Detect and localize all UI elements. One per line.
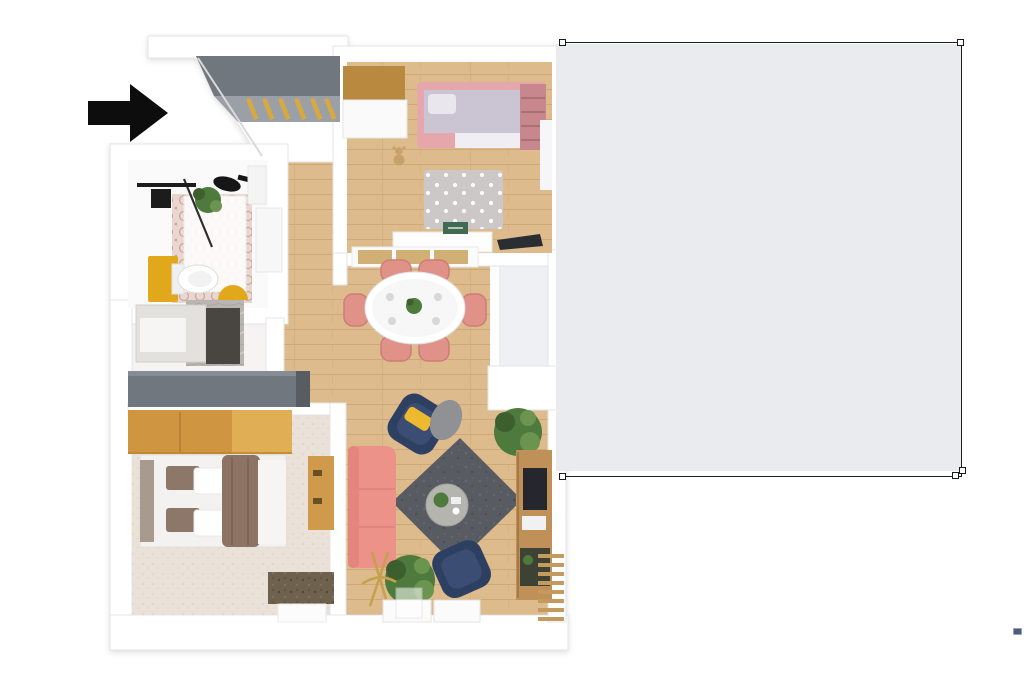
media-console [516, 450, 552, 600]
brown-duvet [222, 455, 260, 547]
entry-wardrobe-top [196, 56, 340, 96]
selection-rect-border[interactable] [562, 42, 962, 477]
laundry-right-wall [266, 318, 284, 374]
floor-plan [110, 36, 568, 650]
headboard [140, 460, 154, 542]
selection-handle-bottom-right[interactable] [952, 472, 959, 479]
kids-corner-stub [333, 253, 347, 285]
hall-cabinet-top [128, 371, 306, 376]
kids-window-curtain [540, 120, 552, 190]
hall-cabinet-cap [296, 371, 310, 407]
left-outer-wall [110, 300, 132, 630]
plant-top-right [494, 408, 542, 456]
bed-foot [258, 460, 286, 544]
coffee-table-book [451, 497, 461, 504]
white-pillow-2 [194, 510, 224, 536]
white-door-mat [278, 604, 326, 622]
selection-handle-bottom-right-2[interactable] [959, 467, 966, 474]
coffee-table-cup [453, 508, 460, 515]
laundry-niche [136, 300, 244, 366]
desk-item-2 [313, 498, 322, 504]
dining-balcony-wall [488, 366, 566, 410]
glass-vase [396, 588, 422, 618]
shower-head [151, 189, 171, 208]
pink-sofa [348, 446, 396, 568]
coffee-table [426, 484, 468, 526]
kids-bed-pillow [428, 94, 456, 114]
hall-cabinet-body [128, 371, 306, 407]
dark-panel [206, 308, 240, 364]
coffee-table-plant [434, 493, 449, 508]
bathroom-counter [248, 166, 266, 204]
bedside-desk [308, 456, 334, 530]
arrow-right-icon [88, 84, 168, 142]
kids-bed-foot [455, 133, 528, 148]
dark-speckled-rug [268, 572, 334, 604]
screenshot-canvas [0, 0, 1024, 696]
washing-machine-door [140, 318, 186, 352]
white-pillow-1 [194, 468, 224, 494]
bathroom-door [256, 208, 282, 272]
centerpiece-leaf [407, 299, 414, 306]
selection-handle-top-left[interactable] [559, 39, 566, 46]
dash-marker [1013, 628, 1022, 635]
tv [523, 468, 547, 510]
toilet-seat [188, 271, 212, 287]
kids-wardrobe-white [343, 100, 407, 138]
double-bed [140, 455, 286, 547]
selection-handle-bottom-left[interactable] [559, 473, 566, 480]
bedroom-wardrobe-right [232, 410, 292, 454]
kids-wardrobe-wood [343, 66, 405, 100]
bottom-wall [110, 615, 568, 650]
hall-cabinet [128, 371, 310, 407]
polka-dot-rug [424, 170, 503, 229]
white-console-2 [434, 600, 480, 622]
sideboard-doors [358, 250, 468, 264]
desk-item [313, 470, 322, 476]
selection-handle-top-right[interactable] [957, 39, 964, 46]
